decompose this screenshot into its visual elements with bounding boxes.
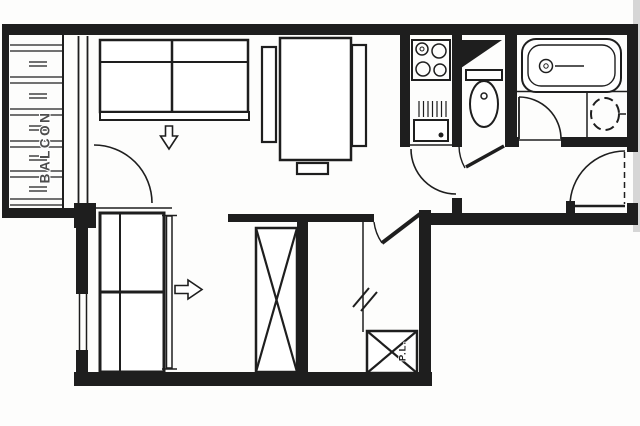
storage-closet-label: P.L. [398, 341, 409, 361]
wall-kitchen-left [400, 34, 410, 147]
wardrobe [256, 228, 297, 372]
chair-right [352, 45, 366, 146]
wall-bedroom-left-upper [76, 228, 88, 294]
wall-bedroom-right [419, 210, 431, 380]
wall-stub-hall [452, 198, 462, 214]
balcony-label: BALCON [38, 111, 53, 184]
wall-balcony-left [2, 24, 9, 218]
wall-balcony-bottom [2, 208, 76, 218]
wall-kitchen-wc [452, 34, 462, 147]
wall-bath-bottom-b [561, 137, 638, 147]
wall-left-corner-block [74, 203, 96, 228]
bench [297, 163, 328, 174]
sink-drain-dot [439, 133, 444, 138]
dining-table [280, 38, 351, 160]
sink [414, 120, 448, 141]
bathtub [522, 39, 621, 92]
wall-right-upper [627, 24, 638, 152]
wall-wardrobe-right [297, 222, 308, 382]
wall-bath-bottom-a [505, 137, 519, 147]
chair-left [262, 47, 276, 142]
drainer-lines [419, 101, 446, 117]
sofa [100, 40, 249, 120]
wall-entry-bottom [430, 213, 638, 225]
wall-wc-right [505, 34, 517, 147]
storage-closet [367, 331, 417, 373]
bed [100, 213, 177, 372]
wall-top [2, 24, 638, 35]
floor-plan-drawing: BALCON P.L. [0, 0, 640, 426]
floor-plan: BALCON P.L. [0, 0, 640, 426]
wall-hall-top [228, 214, 374, 222]
